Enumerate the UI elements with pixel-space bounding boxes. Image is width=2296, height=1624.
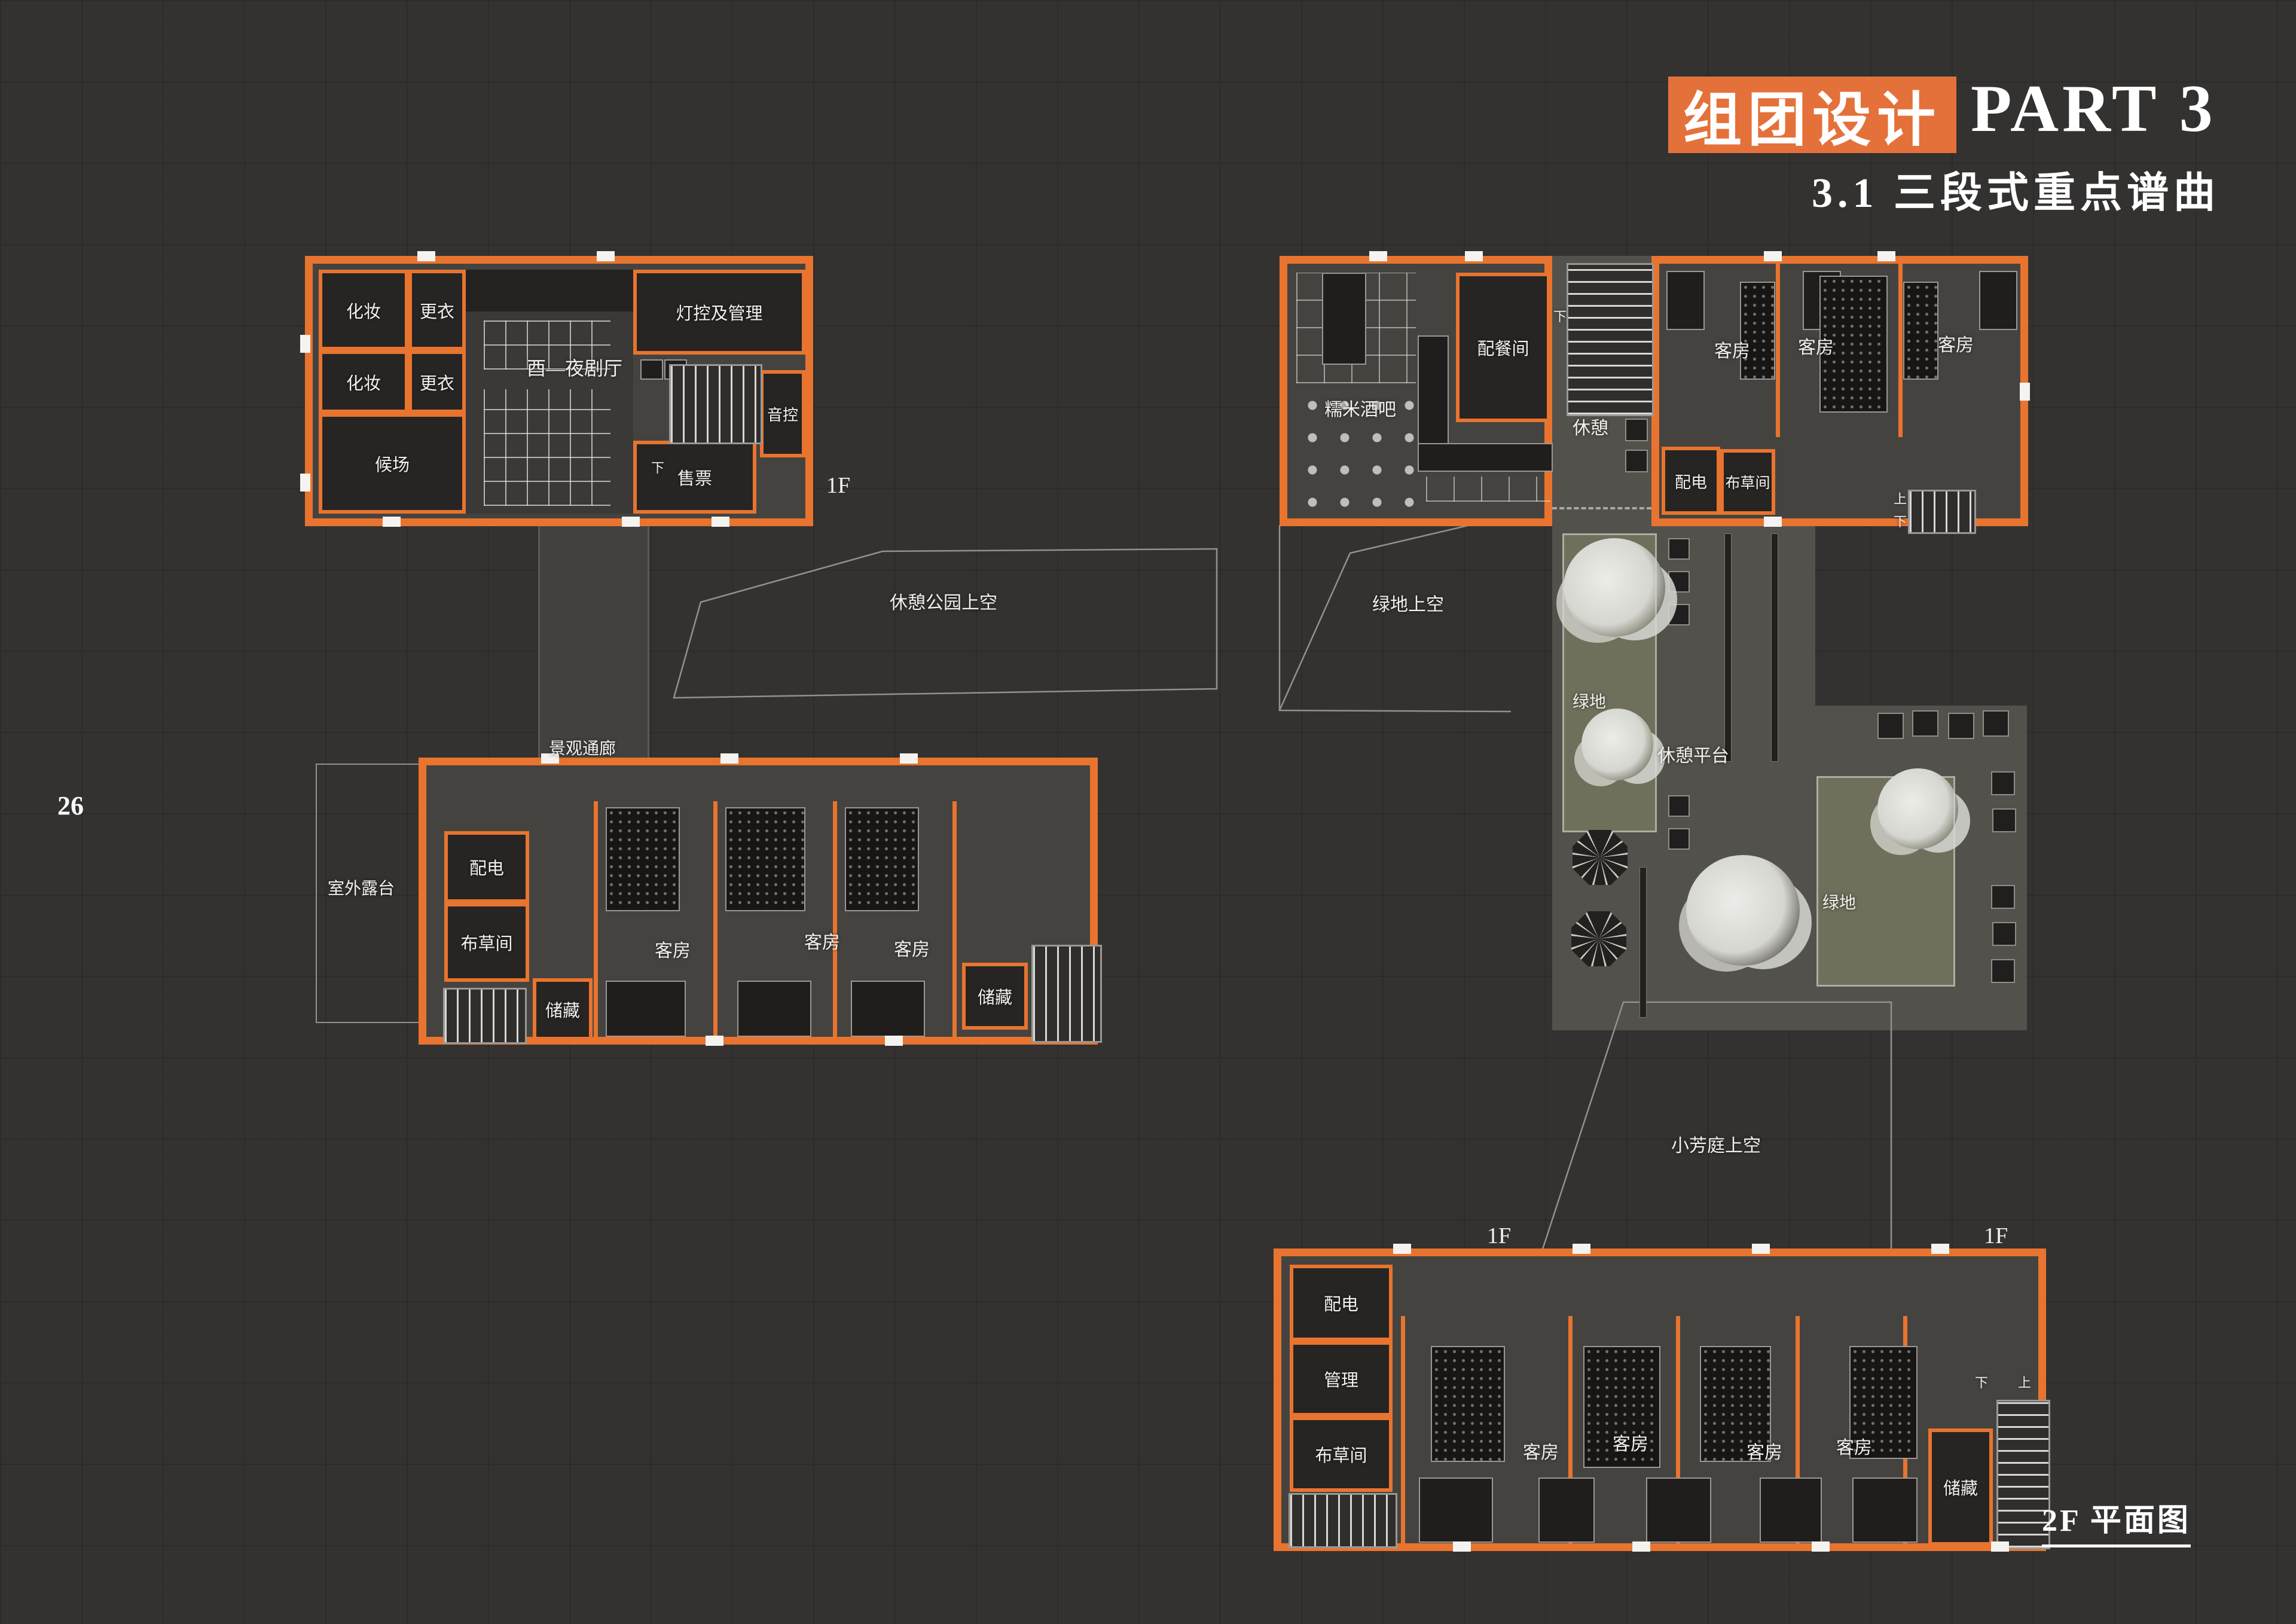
wall	[1776, 264, 1780, 437]
room-lighting-control-label: 灯控及管理	[676, 300, 762, 325]
title-badge-text: 组团设计	[1683, 72, 1941, 157]
bench	[1948, 713, 1974, 739]
room-sound-control: 音控	[760, 370, 805, 457]
bath-pod	[725, 807, 805, 911]
wall	[952, 801, 957, 1038]
bar-building: 配餐间 糯米酒吧	[1280, 256, 1552, 526]
ne-guest-3-label: 客房	[1938, 335, 1974, 355]
wall-gap-marker	[1877, 251, 1895, 261]
lounge-stairs-down-label: 下	[1553, 310, 1567, 324]
room-lighting-control: 灯控及管理	[633, 270, 805, 355]
green-void-label: 绿地上空	[1372, 595, 1444, 615]
south-room-power: 配电	[1290, 1265, 1393, 1341]
wall-gap-marker	[720, 753, 738, 764]
bar-counter-horizontal	[1418, 443, 1553, 472]
title-part: PART 3	[1971, 71, 2216, 148]
lounge-stairs	[1567, 263, 1654, 416]
pavilion-umbrella	[1571, 911, 1626, 966]
theater-building: 化妆 化妆 更衣 更衣 候场 酉—夜剧厅 灯控及管理 下 音控 售票	[305, 256, 813, 526]
bar-shelves	[1322, 273, 1366, 365]
bench	[1668, 571, 1690, 593]
bed-cluster	[1646, 1478, 1711, 1543]
room-changing-2: 更衣	[408, 350, 466, 413]
floor-tag-right: 1F	[1984, 1223, 2008, 1249]
boundary-dashed-line	[1552, 507, 1651, 509]
room-ticketing-label: 售票	[677, 465, 712, 490]
chair	[640, 359, 663, 380]
west-guest-2-label: 客房	[804, 933, 840, 953]
bed-cluster	[1760, 1478, 1822, 1543]
bench	[1991, 771, 2015, 795]
bench	[1912, 710, 1938, 737]
room-sound-control-label: 音控	[767, 403, 798, 425]
bench	[1983, 710, 2009, 737]
bath-pod	[606, 807, 680, 911]
bath-pod	[845, 807, 919, 911]
wall-gap-marker	[622, 517, 640, 527]
west-room-linen-label: 布草间	[460, 930, 512, 955]
room-pantry: 配餐间	[1456, 273, 1550, 422]
south-room-storage: 储藏	[1928, 1428, 1993, 1546]
floor-plan-page: 组团设计 PART 3 3.1 三段式重点谱曲 26 2F 平面图 休憩公园上空…	[0, 0, 2296, 1624]
south-room-management-label: 管理	[1324, 1366, 1358, 1391]
theater-floor-tag: 1F	[826, 472, 850, 499]
wall	[833, 801, 837, 1038]
west-room-power: 配电	[444, 831, 529, 903]
bench	[1668, 538, 1690, 560]
south-guest-4-label: 客房	[1836, 1438, 1872, 1458]
seat-rows-lower	[484, 389, 610, 506]
room-pantry-label: 配餐间	[1477, 335, 1529, 360]
ne-room-linen-label: 布草间	[1725, 471, 1770, 493]
room-makeup-1: 化妆	[319, 270, 408, 350]
wall	[1898, 264, 1903, 437]
south-room-power-label: 配电	[1324, 1290, 1358, 1315]
page-number: 26	[57, 790, 84, 821]
west-guest-1-label: 客房	[655, 941, 691, 961]
wall-gap-marker	[1369, 251, 1387, 261]
title-badge: 组团设计	[1668, 77, 1956, 153]
bench	[1992, 922, 2016, 946]
west-stairs-left	[443, 988, 527, 1044]
south-hotel-building: 配电 管理 布草间 客房 客房 客房 客房 储藏 下 上	[1274, 1248, 2046, 1551]
bed-cluster	[1852, 1478, 1918, 1543]
wall-gap-marker	[1991, 1541, 2009, 1552]
northeast-guest-wing: 客房 客房 客房 配电 布草间 上 下	[1651, 256, 2028, 526]
bed-cluster	[851, 981, 925, 1037]
park-void-outline	[674, 549, 1217, 698]
wall-gap-marker	[417, 251, 435, 261]
lounge-label: 休憩	[1573, 419, 1608, 438]
wall-gap-marker	[2020, 383, 2030, 401]
bench	[1625, 419, 1648, 441]
wall-gap-marker	[712, 517, 729, 527]
wall-gap-marker	[1465, 251, 1483, 261]
wall-gap-marker	[597, 251, 615, 261]
wall-gap-marker	[1573, 1244, 1590, 1254]
south-guest-1-label: 客房	[1523, 1443, 1559, 1463]
room-makeup-2-label: 化妆	[346, 370, 381, 395]
room-makeup-1-label: 化妆	[346, 298, 381, 323]
tree	[1564, 538, 1665, 637]
bench	[1668, 604, 1690, 625]
court-void-label: 小芳庭上空	[1671, 1136, 1761, 1156]
wall-gap-marker	[383, 517, 401, 527]
park-void-label: 休憩公园上空	[890, 593, 997, 613]
bed-cluster	[737, 981, 811, 1037]
bath-pod	[1903, 282, 1938, 380]
wall-gap-marker	[706, 1036, 723, 1046]
ne-guest-2-label: 客房	[1798, 338, 1834, 358]
bath-pod	[1431, 1346, 1505, 1462]
ne-stairs-up-label: 上	[1894, 492, 1907, 506]
west-room-storage-2: 储藏	[962, 963, 1028, 1030]
planter-rail	[1771, 533, 1778, 762]
bed-cluster	[606, 981, 686, 1037]
pavilion-umbrella	[1573, 830, 1628, 885]
wall-gap-marker	[1752, 1244, 1770, 1254]
green-patch-east-label: 绿地	[1822, 895, 1856, 913]
bath-pod	[1740, 282, 1775, 380]
west-room-power-label: 配电	[469, 854, 504, 880]
wall-gap-marker	[300, 335, 310, 353]
bar-stools-row	[1426, 477, 1550, 502]
floor-caption: 2F 平面图	[2042, 1495, 2191, 1547]
bar-label: 糯米酒吧	[1324, 400, 1396, 420]
wall-gap-marker	[1632, 1541, 1650, 1552]
bed-cluster	[1666, 271, 1705, 330]
south-stairs-up-label: 上	[2018, 1376, 2031, 1390]
ne-room-linen: 布草间	[1720, 449, 1775, 515]
ne-guest-1-label: 客房	[1714, 341, 1750, 361]
bench	[1992, 808, 2016, 832]
wall	[1401, 1316, 1405, 1544]
corridor-label: 景观通廊	[549, 740, 616, 759]
tree	[1877, 768, 1958, 849]
wall-gap-marker	[1764, 251, 1782, 261]
wall-gap-marker	[300, 474, 310, 492]
bed-cluster	[1419, 1478, 1493, 1543]
floor-tag-left: 1F	[1487, 1223, 1511, 1249]
wall-gap-marker	[1393, 1244, 1411, 1254]
ne-room-power: 配电	[1662, 447, 1720, 515]
terrace-label: 室外露台	[328, 880, 395, 899]
bench	[1991, 885, 2015, 909]
bench	[1668, 795, 1690, 817]
room-changing-2-label: 更衣	[420, 370, 454, 395]
wall-gap-marker	[900, 753, 918, 764]
theater-stairs-down-label: 下	[651, 461, 664, 475]
south-room-linen: 布草间	[1290, 1417, 1393, 1492]
wall-gap-marker	[1453, 1541, 1471, 1552]
south-guest-3-label: 客房	[1747, 1443, 1782, 1463]
stage	[466, 270, 633, 312]
west-stairs-right	[1031, 945, 1102, 1043]
tree	[1581, 709, 1653, 780]
bed-cluster	[1979, 271, 2017, 330]
west-room-linen: 布草间	[444, 903, 529, 982]
bench	[1991, 959, 2015, 983]
bed-cluster	[1538, 1478, 1595, 1543]
platform-label: 休憩平台	[1657, 746, 1729, 766]
wall-gap-marker	[1812, 1541, 1830, 1552]
west-guest-3-label: 客房	[894, 940, 930, 960]
room-makeup-2: 化妆	[319, 350, 408, 413]
south-room-storage-label: 储藏	[1943, 1475, 1978, 1500]
green-void-outline	[1280, 525, 1511, 712]
wall-gap-marker	[1931, 1244, 1949, 1254]
wall-gap-marker	[885, 1036, 903, 1046]
ne-room-power-label: 配电	[1675, 469, 1707, 493]
west-room-storage-1: 储藏	[533, 978, 593, 1040]
bench	[1625, 450, 1648, 472]
tree	[1686, 855, 1800, 966]
planter-rail	[1724, 533, 1732, 762]
west-room-storage-1-label: 储藏	[545, 997, 580, 1022]
room-ticketing: 售票	[633, 441, 756, 514]
room-changing-1-label: 更衣	[420, 298, 454, 323]
bench	[1668, 828, 1690, 850]
ne-stairs	[1908, 490, 1976, 534]
planter-rail	[1639, 867, 1647, 1018]
theater-hall-label: 酉—夜剧厅	[527, 358, 622, 379]
room-changing-1: 更衣	[408, 270, 466, 350]
green-strip-label: 绿地	[1573, 694, 1606, 712]
south-guest-2-label: 客房	[1613, 1434, 1648, 1454]
theater-stairs	[669, 364, 762, 444]
south-stairs-down-label: 下	[1975, 1376, 1988, 1390]
wall-gap-marker	[1764, 517, 1782, 527]
south-room-management: 管理	[1290, 1341, 1393, 1417]
west-room-storage-2-label: 储藏	[978, 984, 1012, 1009]
room-waiting-label: 候场	[375, 451, 410, 476]
wall	[594, 801, 598, 1038]
wall	[713, 801, 717, 1038]
room-waiting: 候场	[319, 413, 466, 514]
south-room-linen-label: 布草间	[1315, 1442, 1367, 1467]
ne-stairs-down-label: 下	[1894, 515, 1907, 529]
page-subtitle: 3.1 三段式重点谱曲	[1812, 159, 2220, 219]
bench	[1877, 713, 1904, 739]
south-stairs-left	[1289, 1493, 1397, 1548]
west-hotel-building: 配电 布草间 客房 客房 客房 储藏 储藏	[419, 758, 1098, 1045]
